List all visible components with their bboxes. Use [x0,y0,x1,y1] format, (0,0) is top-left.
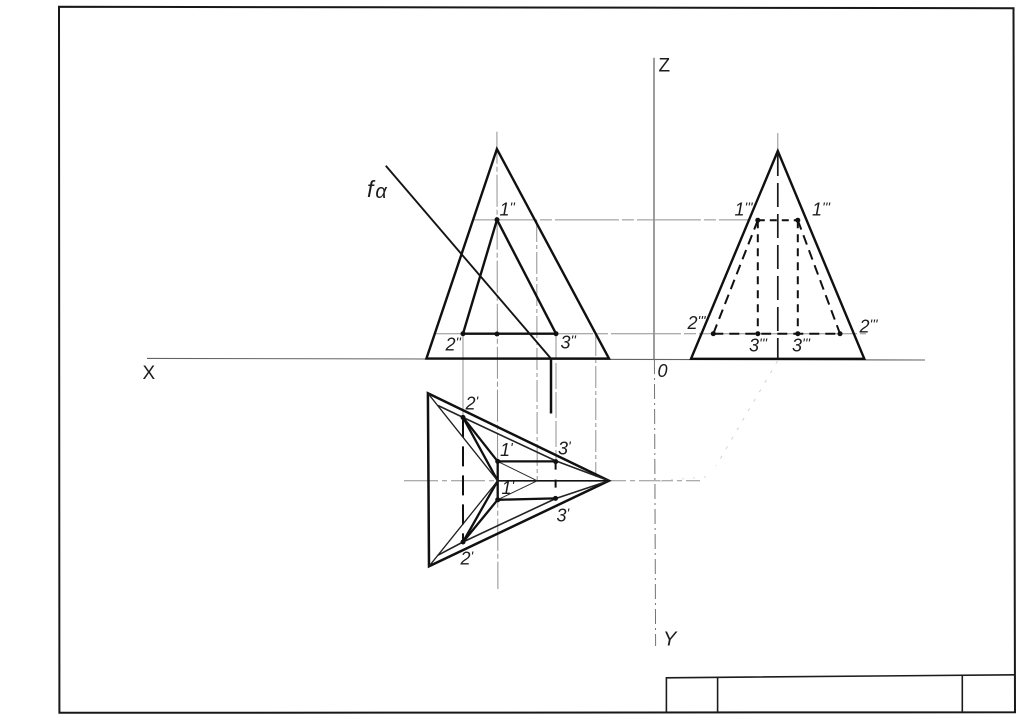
svg-text:1': 1' [502,478,516,499]
svg-text:2': 2' [460,548,475,569]
svg-text:3''': 3''' [792,335,811,356]
svg-text:2'': 2'' [445,334,463,355]
svg-text:0: 0 [658,361,668,381]
svg-text:3': 3' [558,438,572,459]
svg-text:1''': 1''' [812,199,831,220]
svg-text:3''': 3''' [749,335,768,356]
svg-text:1'': 1'' [500,199,517,220]
svg-text:2''': 2''' [859,316,879,337]
svg-text:3'': 3'' [561,332,578,353]
svg-text:1': 1' [500,440,514,461]
svg-text:2': 2' [465,393,480,414]
svg-text:Y: Y [663,629,678,651]
svg-text:fα: fα [367,176,387,203]
svg-text:Z: Z [659,55,671,76]
svg-text:3': 3' [557,505,571,526]
svg-text:X: X [143,363,156,384]
